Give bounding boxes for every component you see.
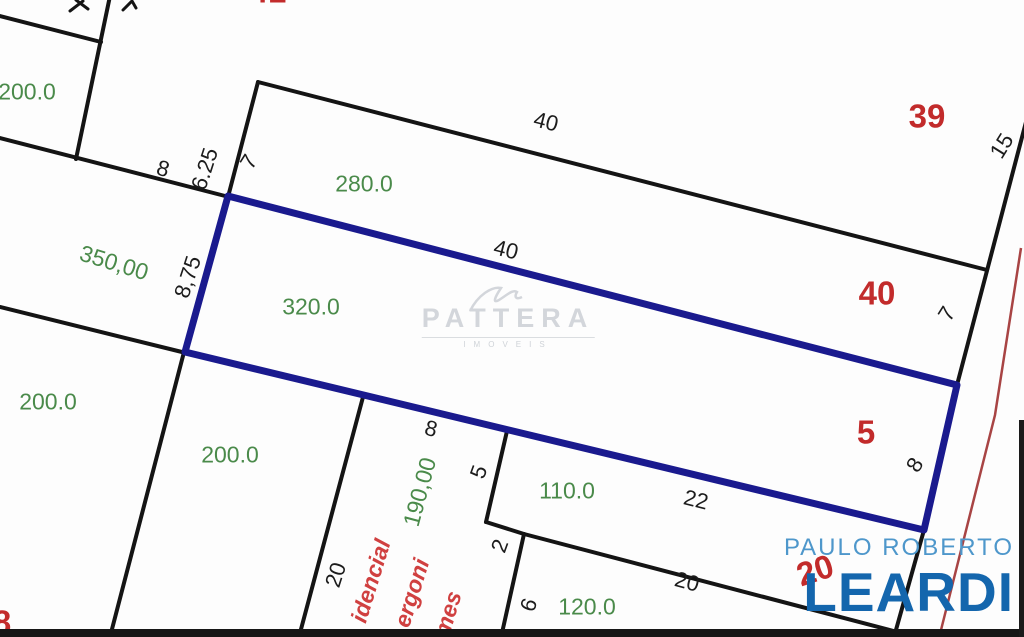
area-left-200: 200.0 — [19, 391, 77, 414]
dim-40-top: 40 — [531, 108, 560, 135]
area-topleft-200: 200.0 — [0, 81, 56, 104]
line-lot40-left-edge — [228, 82, 258, 197]
line-topleft-short — [0, 16, 101, 42]
logo-name-main: LEARDI — [784, 560, 1014, 624]
lot-5: 5 — [857, 416, 875, 449]
right-border-strip — [1019, 420, 1024, 637]
bottom-border-strip — [0, 629, 1024, 637]
dim-40-mid: 40 — [491, 236, 520, 263]
area-mid-200: 200.0 — [201, 444, 259, 467]
line-street-front-lower-left — [0, 307, 186, 353]
watermark-name: PATTERA — [422, 303, 595, 334]
line-side-left-lower — [111, 352, 184, 633]
line-topleft-vertical — [76, 0, 110, 159]
watermark-subtext: IMOVEIS — [422, 337, 595, 349]
area-110: 110.0 — [539, 480, 595, 503]
realtor-logo: PAULO ROBERTO LEARDI — [784, 534, 1014, 624]
partial-glyph-arrow — [123, 1, 136, 10]
lot-top-partial: 41 — [250, 0, 287, 8]
lot-39: 39 — [909, 100, 946, 133]
line-street-right-upper — [957, 122, 1024, 385]
logo-name-top: PAULO ROBERTO — [784, 534, 1014, 562]
area-280: 280.0 — [335, 173, 393, 196]
area-320: 320.0 — [282, 296, 340, 319]
lot-40: 40 — [859, 277, 896, 310]
line-jog-2m — [486, 522, 524, 534]
plot-plan: PATTERA IMOVEIS 200.0350,00280.0320.0200… — [0, 0, 1024, 637]
dim-22: 22 — [681, 486, 710, 513]
watermark: PATTERA IMOVEIS — [422, 303, 595, 349]
area-120: 120.0 — [558, 596, 616, 619]
